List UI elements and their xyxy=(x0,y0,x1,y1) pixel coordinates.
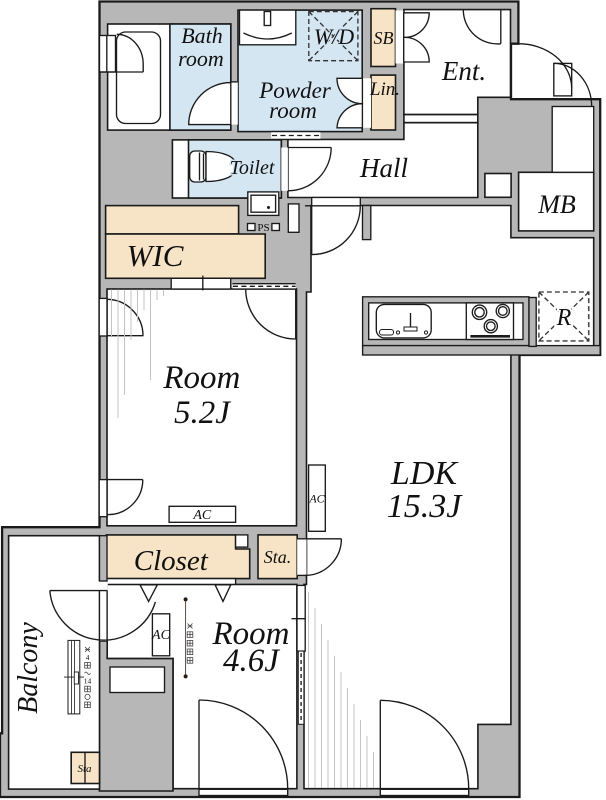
svg-text:4.6J: 4.6J xyxy=(223,643,280,679)
svg-text:MB: MB xyxy=(537,190,576,219)
svg-text:WIC: WIC xyxy=(127,238,184,273)
svg-text:W/D: W/D xyxy=(314,24,354,49)
svg-text:AC: AC xyxy=(192,508,212,523)
svg-text:AC: AC xyxy=(151,628,171,643)
svg-text:Sta: Sta xyxy=(77,763,92,775)
svg-text:Bath: Bath xyxy=(181,23,223,48)
svg-text:Room: Room xyxy=(162,360,240,396)
svg-text:Lin.: Lin. xyxy=(369,79,400,100)
svg-text:14: 14 xyxy=(84,677,92,686)
svg-text:Sta.: Sta. xyxy=(264,547,292,567)
svg-text:15.3J: 15.3J xyxy=(387,488,464,525)
svg-text:Hall: Hall xyxy=(359,153,408,183)
svg-text:Closet: Closet xyxy=(134,545,209,577)
svg-text:PS: PS xyxy=(257,222,269,234)
svg-text:R: R xyxy=(556,305,572,331)
svg-text:5.2J: 5.2J xyxy=(174,395,231,431)
svg-text:room: room xyxy=(269,98,317,123)
svg-text:LDK: LDK xyxy=(390,455,459,492)
svg-text:SB: SB xyxy=(374,28,394,48)
svg-text:Ent.: Ent. xyxy=(441,56,486,86)
svg-text:Toilet: Toilet xyxy=(230,157,275,179)
svg-text:AC: AC xyxy=(308,492,325,506)
svg-text:room: room xyxy=(178,46,224,71)
svg-text:Balcony: Balcony xyxy=(13,622,44,714)
svg-text:4: 4 xyxy=(86,653,90,662)
